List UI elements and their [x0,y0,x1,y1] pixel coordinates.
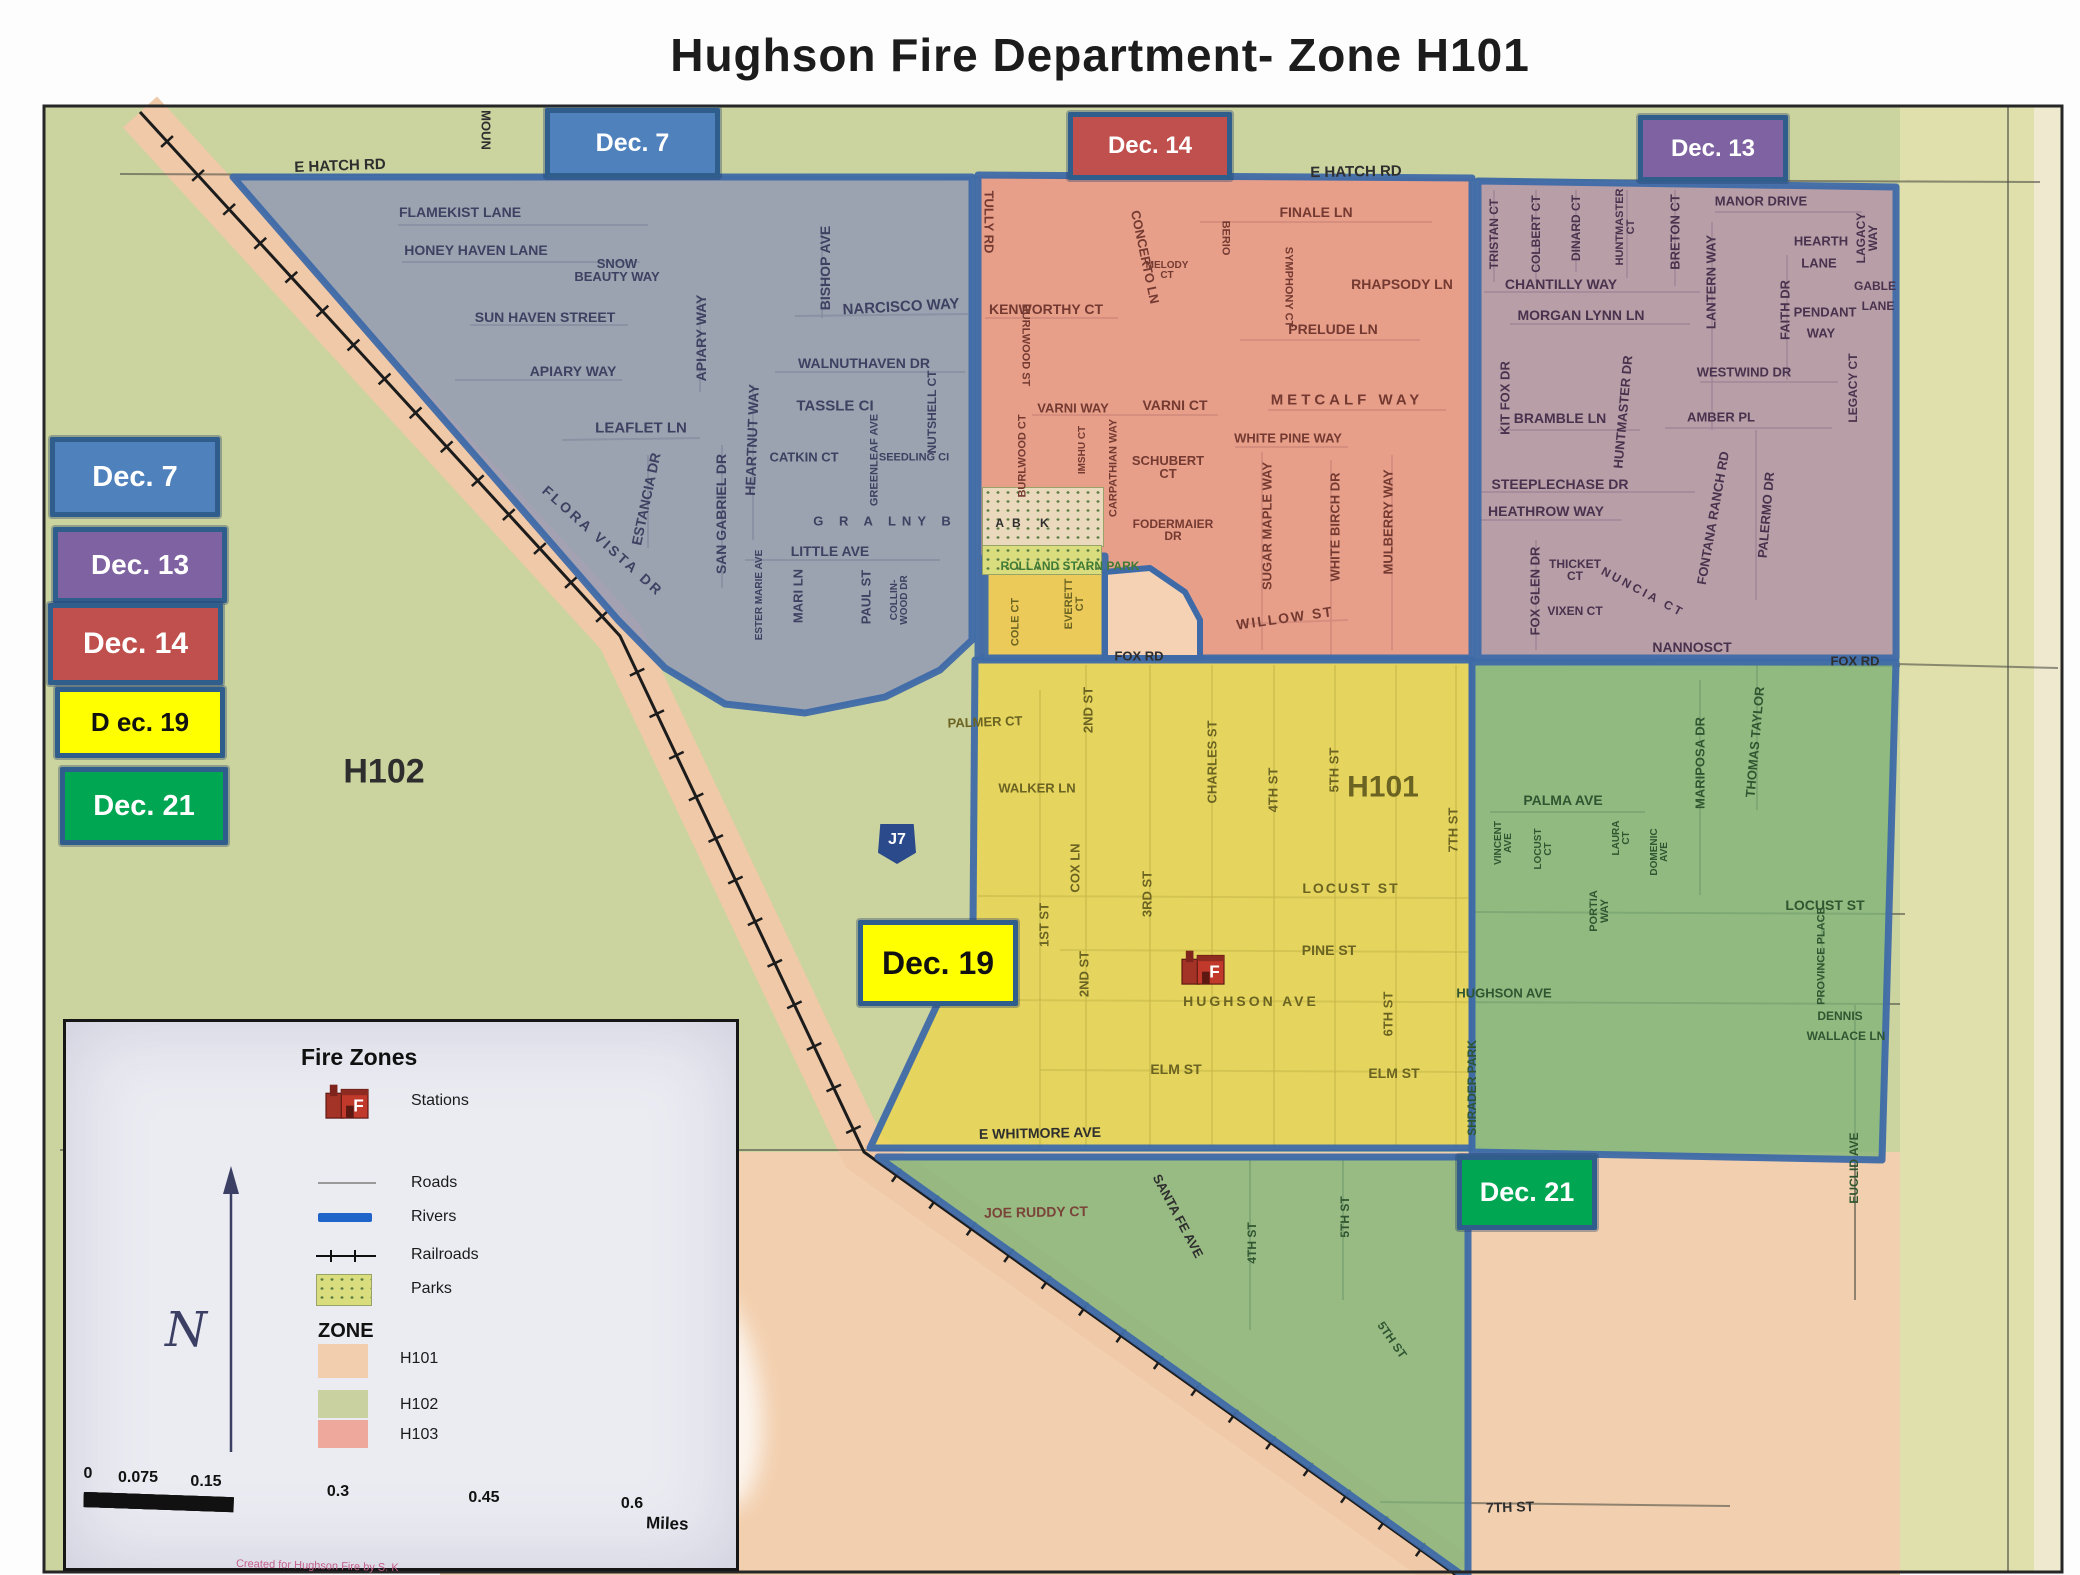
legend-parks-sample [316,1274,372,1306]
highway-j7-label: J7 [888,831,906,849]
street-label: VARNI CT [1142,398,1207,412]
street-label: SUGAR MAPLE WAY [1260,462,1273,590]
schedule-badge: Dec. 21 [1457,1155,1597,1230]
street-label: SYMPHONY CT [1282,247,1293,327]
street-label: CATKIN CT [769,450,838,463]
schedule-badge: Dec. 13 [1638,115,1788,182]
street-label: 2ND ST [1081,687,1094,733]
street-label: HEARTH [1794,234,1848,247]
street-label: ELM ST [1368,1066,1419,1080]
svg-text:F: F [1209,961,1220,981]
street-label: WALLACE LN [1807,1030,1886,1042]
street-label: CARPATHIAN WAY [1108,419,1119,517]
street-label: PALMA AVE [1523,793,1602,807]
street-label: SHRADER PARK [1466,1040,1478,1136]
street-label: DENNIS [1817,1010,1862,1022]
street-label: GABLE [1854,280,1896,292]
street-label: DOMENIC AVE [1650,828,1670,875]
street-label: PORTIA WAY [1589,890,1611,932]
fire-station-icon: F [1180,944,1226,986]
street-label: METCALF WAY [1271,392,1424,407]
street-label: KIT FOX DR [1498,361,1511,435]
street-label: EUCLID AVE [1848,1132,1860,1203]
street-label: FOX RD [1830,654,1879,667]
street-label: MORGAN LYNN LN [1517,308,1644,322]
map-right-strip [1900,106,2034,1572]
schedule-badge: Dec. 19 [858,920,1018,1006]
street-label: PAUL ST [859,570,872,624]
street-label: 4TH ST [1246,1222,1258,1263]
street-label: H102 [343,755,424,790]
street-label: E WHITMORE AVE [979,1125,1101,1141]
street-label: NANNOSCT [1652,640,1731,654]
street-label: RHAPSODY LN [1351,277,1453,291]
street-label: SEEDLING CI [879,452,949,463]
street-label: MOUN [479,110,492,150]
schedule-badge: Dec. 13 [53,527,227,603]
street-label: PINE ST [1302,943,1356,957]
schedule-badge: D ec. 19 [55,687,225,758]
street-label: COLLIN- WOOD DR [890,575,910,624]
street-label: ROLLAND STARN PARK [1001,560,1140,572]
street-label: G R A LNY B [813,514,957,527]
street-label: HEATHROW WAY [1488,504,1604,518]
street-label: LANE [1862,300,1895,312]
street-label: HUGHSON AVE [1183,994,1319,1008]
street-label: 5TH ST [1339,1196,1351,1237]
street-label: MANOR DRIVE [1715,194,1807,207]
schedule-badge: Dec. 14 [1068,112,1232,180]
street-label: CHARLES ST [1205,720,1218,803]
street-label: LEGACY CT [1847,353,1859,422]
schedule-badge: Dec. 14 [48,603,223,685]
scale-tick-label: 0 [84,1465,93,1483]
street-label: FLAMEKIST LANE [399,205,521,219]
street-label: WHITE BIRCH DR [1328,472,1341,581]
street-label: FODERMAIER DR [1133,518,1214,542]
street-label: 4TH ST [1266,768,1279,813]
street-label: LITTLE AVE [791,544,870,558]
street-label: THICKET CT [1549,558,1601,582]
street-label: WALNUTHAVEN DR [798,356,930,370]
street-label: BISHOP AVE [818,226,832,311]
street-label: MARI LN [791,569,804,623]
street-label: BRETON CT [1668,194,1681,270]
map-page: Hughson Fire Department- Zone H101 E HAT… [0,0,2080,1575]
street-label: TULLY RD [982,191,995,254]
street-label: JOE RUDDY CT [984,1204,1088,1220]
street-label: VIXEN CT [1547,605,1602,617]
scale-unit: Miles [646,1513,689,1534]
street-label: SUN HAVEN STREET [475,310,616,324]
street-label: PALMER CT [947,714,1022,730]
street-label: ESTER MARIE AVE [755,550,765,641]
map-edge-strip [2034,106,2062,1572]
street-label: WALKER LN [998,781,1075,794]
street-label: COLE CT [1010,598,1021,646]
street-label: FOX GLEN DR [1528,547,1541,636]
street-label: E HATCH RD [294,157,386,175]
street-label: CHANTILLY WAY [1505,277,1617,291]
street-label: 7TH ST [1486,1499,1535,1515]
street-label: VARNI WAY [1037,401,1109,414]
street-label: 5TH ST [1327,748,1340,793]
street-label: COLBERT CT [1530,195,1542,272]
street-label: VINCENT AVE [1494,821,1514,865]
street-label: 3RD ST [1140,871,1153,917]
street-label: APIARY WAY [694,295,708,382]
street-label: 6TH ST [1381,992,1394,1037]
street-label: IMSHU CT [1078,426,1088,474]
street-label: E HATCH RD [1310,164,1402,181]
street-label: MARIPOSA DR [1693,717,1706,809]
street-label: 1ST ST [1037,903,1050,947]
street-label: ELM ST [1150,1062,1201,1076]
street-label: LANTERN WAY [1704,235,1717,329]
map-canvas: E HATCH RDE HATCH RDMOUNH1027TH STFOX RD… [0,0,2080,1575]
street-label: LOCUST ST [1302,881,1399,895]
street-label: LAGACY WAY [1855,213,1879,264]
street-label: COX LN [1068,843,1081,892]
street-label: SNOW BEAUTY WAY [574,257,659,284]
street-label: FOX RD [1114,649,1163,662]
scale-tick-label: 0.15 [190,1473,221,1491]
street-label: AMBER PL [1687,410,1755,423]
street-label: AB K [995,517,1056,529]
scale-labels: 00.0750.150.30.450.6 [66,1022,736,1568]
street-label: LAURA CT [1612,821,1632,856]
street-label: STEEPLECHASE DR [1492,477,1629,491]
street-label: BERIO [1219,221,1230,256]
street-label: FINALE LN [1279,205,1352,219]
scale-tick-label: 0.6 [621,1495,643,1513]
schedule-badge: Dec. 7 [50,437,220,517]
scale-tick-label: 0.075 [118,1469,158,1487]
street-label: HUNTMASTER CT [1615,189,1637,266]
street-label: SCHUBERT CT [1132,454,1204,481]
street-label: HONEY HAVEN LANE [404,243,547,257]
street-label: TRISTAN CT [1488,199,1500,269]
street-label: WAY [1807,326,1835,339]
scale-tick-label: 0.45 [468,1489,499,1507]
street-label: SAN GABRIEL DR [714,454,728,574]
street-label: MULBERRY WAY [1381,470,1394,575]
street-label: DINARD CT [1570,195,1582,261]
street-label: PRELUDE LN [1288,322,1377,336]
street-label: EVERETT CT [1064,579,1086,630]
street-label: HEARTNUT WAY [743,384,761,496]
legend-panel: Fire Zones N F StationsRoadsRiversRailro… [63,1019,739,1571]
scale-tick-label: 0.3 [327,1483,349,1501]
street-label: APIARY WAY [530,364,617,378]
street-label: WHITE PINE WAY [1234,431,1342,444]
street-label: MELODY CT [1146,261,1189,281]
street-label: WESTWIND DR [1697,365,1792,378]
street-label: PENDANT [1794,305,1857,318]
street-label: FAITH DR [1778,280,1791,340]
fire-station-marker: F [1180,944,1226,986]
street-label: HUGHSON AVE [1456,986,1551,999]
street-label: BURLWOOD CT [1017,414,1028,497]
street-label: BURLWOOD ST [1019,304,1030,387]
street-label: KENWORTHY CT [989,302,1103,316]
page-title: Hughson Fire Department- Zone H101 [640,28,1560,82]
street-label: LANE [1801,256,1836,269]
street-label: LOCUST CT [1534,828,1554,869]
street-label: 2ND ST [1077,951,1090,997]
street-label: H101 [1347,773,1419,804]
schedule-badge: Dec. 21 [60,767,228,845]
street-label: PROVINCE PLACE [1816,907,1827,1005]
street-label: NUTSHELL CT [926,370,938,453]
street-label: LEAFLET LN [595,420,687,435]
schedule-badge: Dec. 7 [545,108,720,178]
street-label: TASSLE CI [796,398,873,413]
street-label: BRAMBLE LN [1514,411,1607,425]
street-label: 7TH ST [1446,808,1459,853]
